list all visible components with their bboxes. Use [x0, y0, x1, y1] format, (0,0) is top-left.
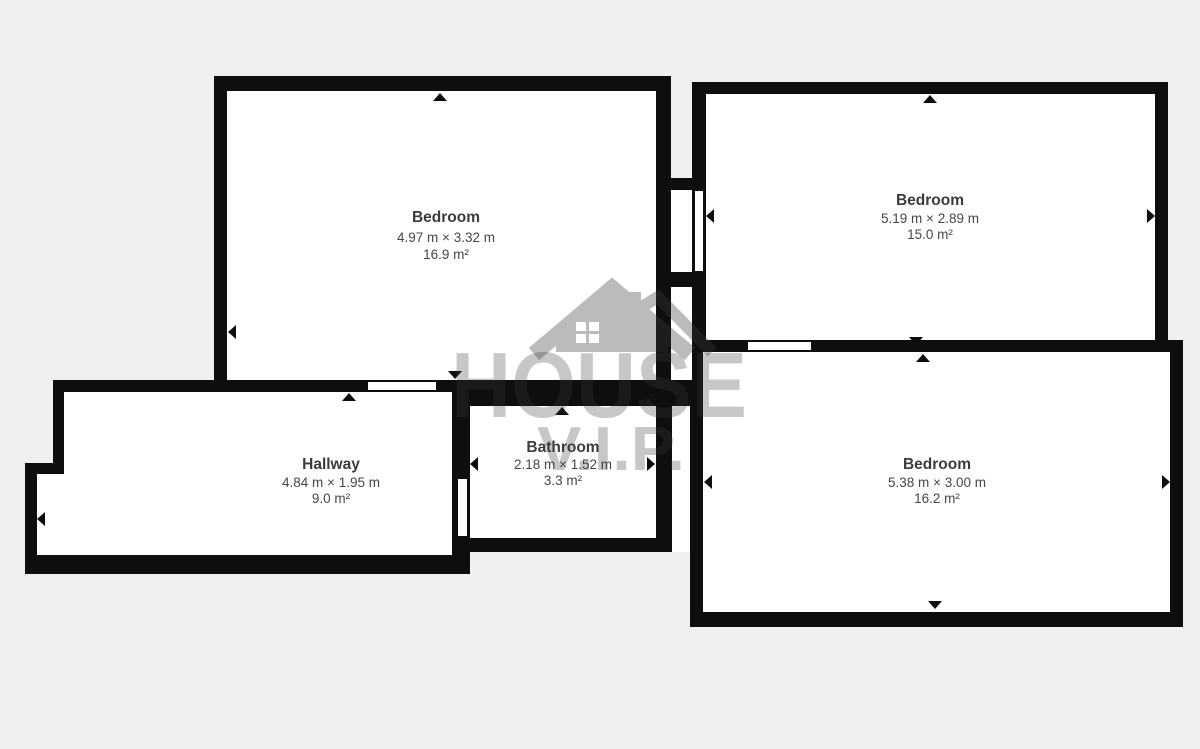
- pier-hole: [219, 395, 230, 404]
- room-area: 16.2 m²: [914, 491, 960, 506]
- room-area: 16.9 m²: [423, 247, 469, 262]
- wall-segment: [214, 76, 671, 91]
- watermark-brand-bottom: V.I.P.: [537, 415, 685, 484]
- window-hallway-bathroom: [457, 478, 468, 537]
- wall-segment: [1155, 82, 1168, 352]
- room-area: 9.0 m²: [312, 491, 351, 506]
- door-opening-between-bedrooms: [747, 341, 812, 351]
- room-dimensions: 5.38 m × 3.00 m: [888, 475, 986, 490]
- room-name: Bedroom: [903, 456, 971, 473]
- floor-plan: Bedroom 4.97 m × 3.32 m 16.9 m² Bedroom …: [0, 0, 1200, 749]
- room-dimensions: 4.84 m × 1.95 m: [282, 475, 380, 490]
- room-name: Hallway: [302, 456, 360, 473]
- room-name: Bedroom: [896, 192, 964, 209]
- wall-segment: [690, 612, 1183, 627]
- room-name: Bedroom: [412, 209, 480, 226]
- wall-segment: [53, 380, 64, 473]
- window-top-right-bedroom: [694, 190, 704, 272]
- floor-shaft: [671, 190, 692, 272]
- wall-segment: [25, 555, 470, 574]
- room-dimensions: 5.19 m × 2.89 m: [881, 211, 979, 226]
- wall-segment: [214, 76, 227, 392]
- wall-segment: [452, 538, 672, 552]
- door-opening-hallway-bedroom: [367, 381, 437, 391]
- room-area: 15.0 m²: [907, 227, 953, 242]
- room-dimensions: 4.97 m × 3.32 m: [397, 230, 495, 245]
- floor-hallway: [37, 392, 452, 555]
- wall-segment: [692, 82, 1168, 94]
- wall-segment: [1170, 340, 1183, 627]
